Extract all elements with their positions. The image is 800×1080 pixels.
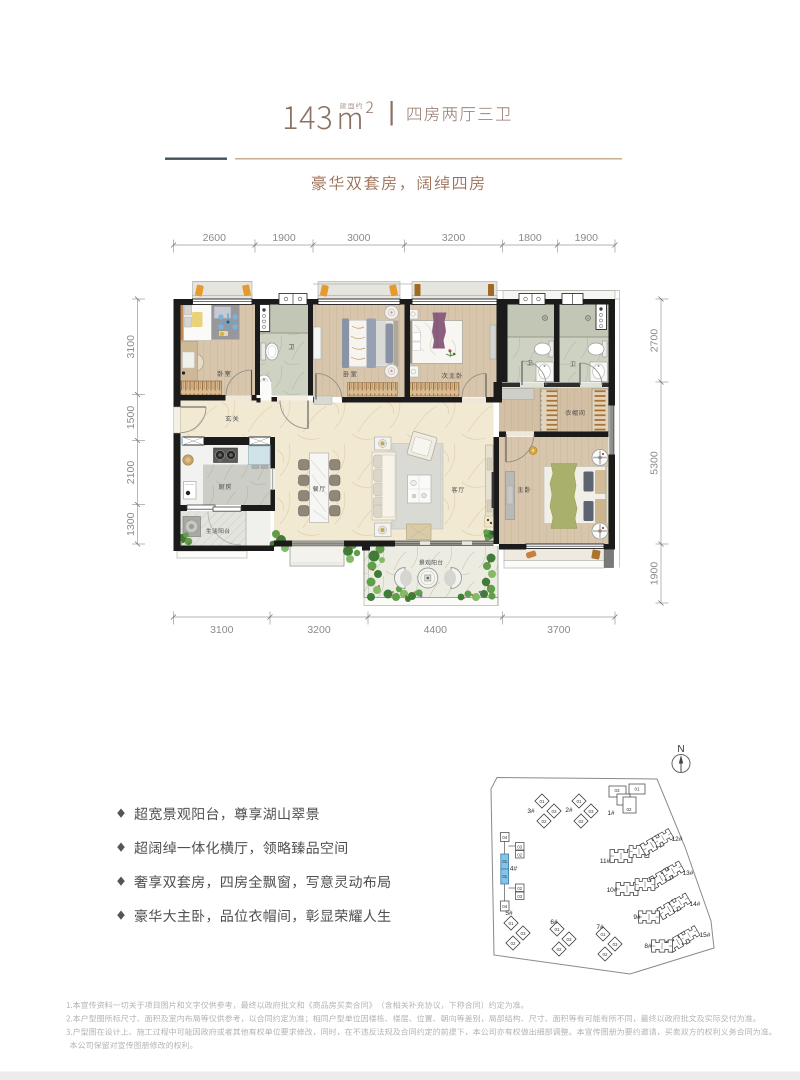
svg-text:02: 02 — [626, 807, 632, 812]
svg-text:1800: 1800 — [518, 232, 542, 244]
svg-text:1#: 1# — [607, 810, 615, 817]
svg-text:1900: 1900 — [575, 232, 599, 244]
svg-text:04: 04 — [502, 835, 508, 840]
svg-text:3#: 3# — [527, 808, 535, 815]
svg-text:01: 01 — [502, 874, 507, 879]
svg-text:1900: 1900 — [649, 562, 661, 586]
svg-text:1900: 1900 — [272, 232, 296, 244]
svg-text:02: 02 — [602, 952, 608, 957]
svg-text:2700: 2700 — [649, 329, 661, 353]
svg-text:2600: 2600 — [203, 232, 227, 244]
svg-text:11#: 11# — [600, 858, 611, 865]
svg-text:3200: 3200 — [442, 232, 466, 244]
svg-text:01: 01 — [634, 787, 640, 792]
svg-text:3700: 3700 — [547, 624, 571, 636]
svg-text:9#: 9# — [633, 914, 641, 921]
svg-text:3200: 3200 — [307, 624, 331, 636]
svg-text:02: 02 — [517, 886, 522, 891]
svg-text:02: 02 — [510, 941, 516, 946]
svg-text:03: 03 — [588, 809, 594, 814]
svg-text:02: 02 — [556, 947, 562, 952]
svg-text:3000: 3000 — [347, 232, 371, 244]
svg-text:2100: 2100 — [125, 461, 137, 485]
svg-text:02: 02 — [578, 819, 584, 824]
svg-text:13#: 13# — [683, 870, 694, 877]
svg-text:14#: 14# — [690, 901, 701, 908]
svg-text:2#: 2# — [565, 807, 573, 814]
svg-text:02: 02 — [517, 852, 522, 857]
svg-text:5300: 5300 — [649, 451, 661, 475]
svg-text:4400: 4400 — [424, 624, 448, 636]
svg-text:01: 01 — [508, 921, 514, 926]
svg-text:03: 03 — [551, 809, 557, 814]
svg-text:04: 04 — [502, 904, 508, 909]
svg-text:03: 03 — [520, 931, 526, 936]
svg-text:1500: 1500 — [125, 406, 137, 430]
svg-text:3100: 3100 — [125, 335, 137, 359]
svg-text:01: 01 — [502, 859, 507, 864]
svg-text:01: 01 — [576, 799, 582, 804]
svg-text:N: N — [677, 744, 684, 755]
svg-text:10#: 10# — [607, 887, 618, 894]
svg-text:3100: 3100 — [210, 624, 234, 636]
svg-text:03: 03 — [614, 788, 620, 793]
svg-text:5#: 5# — [505, 910, 513, 917]
svg-text:12#: 12# — [672, 836, 683, 843]
svg-text:8#: 8# — [644, 943, 652, 950]
svg-text:4#: 4# — [510, 866, 518, 873]
svg-text:01: 01 — [539, 799, 545, 804]
svg-text:15#: 15# — [700, 932, 711, 939]
svg-text:02: 02 — [541, 819, 547, 824]
svg-text:03: 03 — [517, 894, 522, 899]
svg-text:01: 01 — [600, 932, 606, 937]
svg-text:1300: 1300 — [125, 512, 137, 536]
svg-text:7#: 7# — [596, 924, 604, 931]
svg-text:01: 01 — [554, 927, 560, 932]
svg-text:03: 03 — [612, 942, 618, 947]
svg-text:6#: 6# — [550, 919, 558, 926]
svg-text:03: 03 — [566, 937, 572, 942]
svg-text:03: 03 — [517, 844, 522, 849]
